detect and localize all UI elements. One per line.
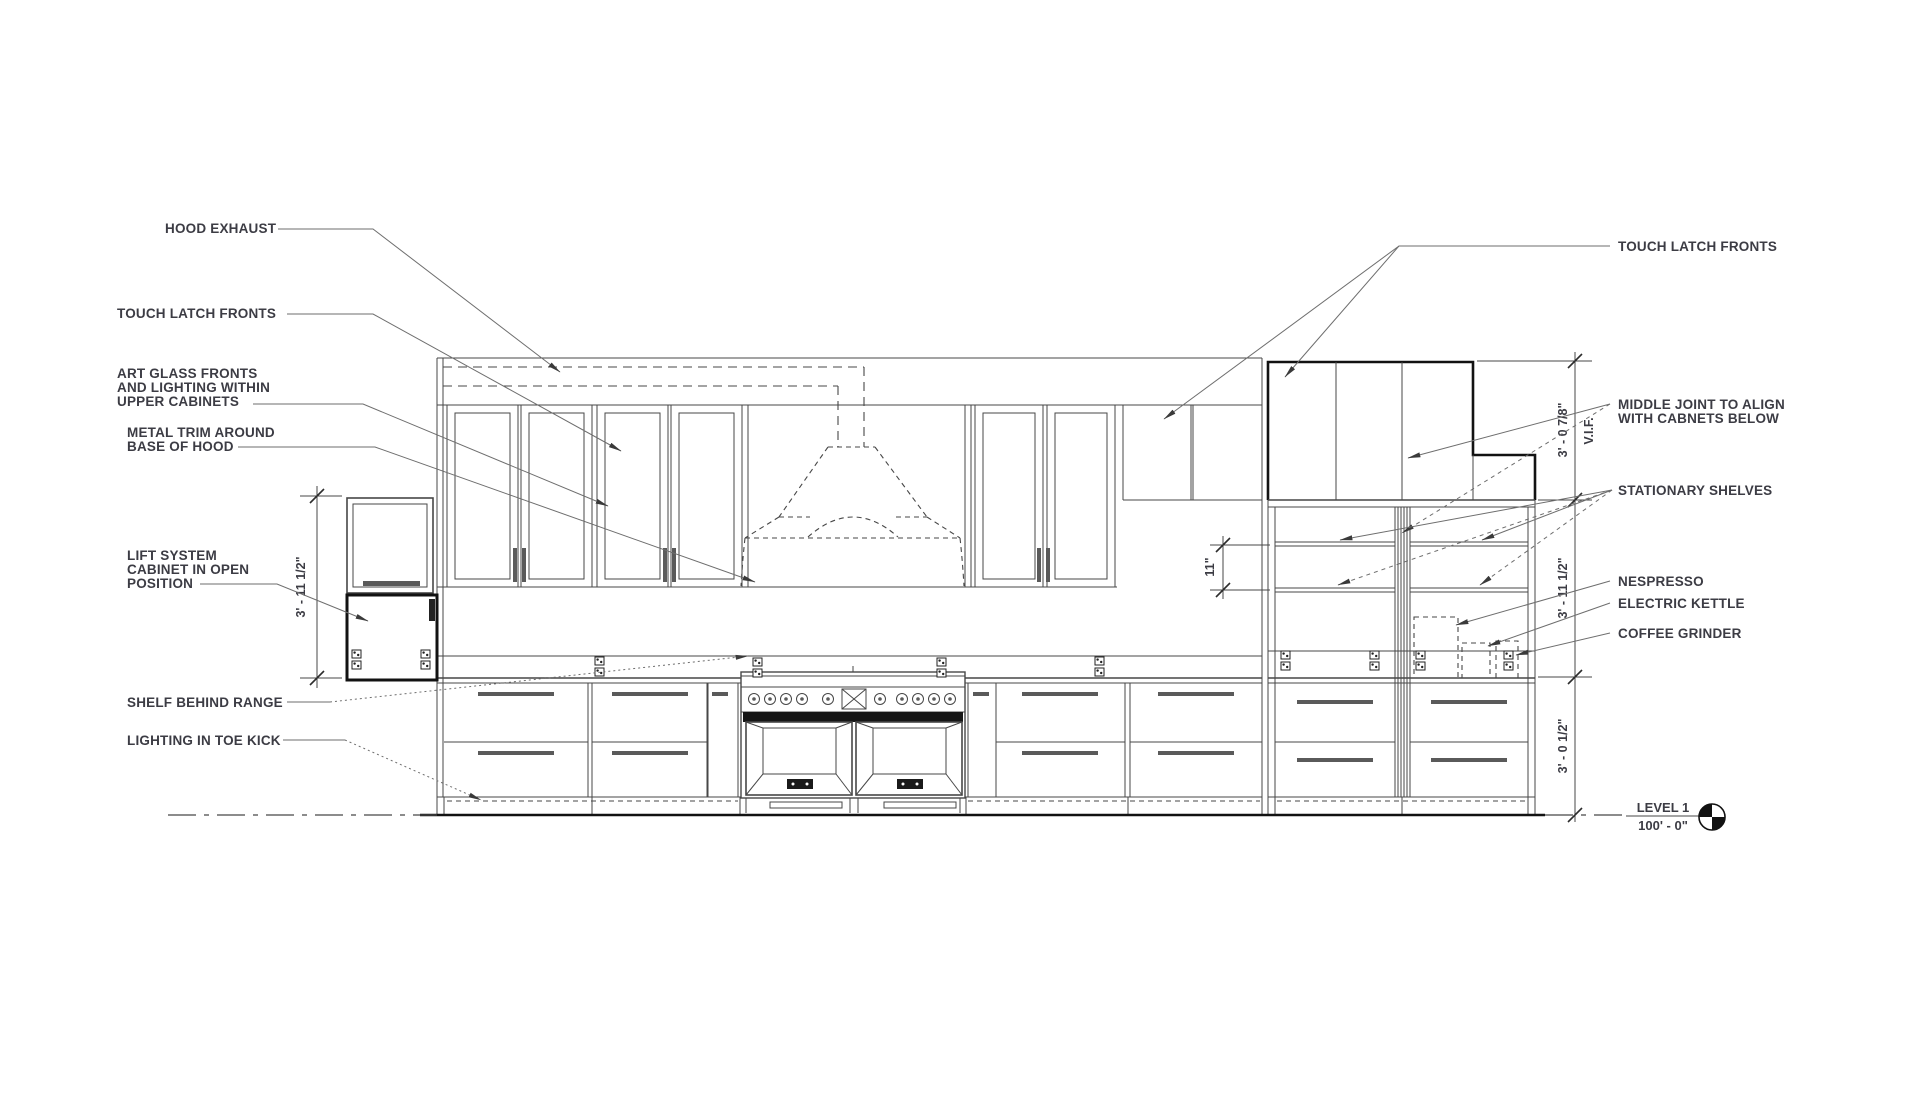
dim-lift-cabinet-height: 3' - 11 1/2" — [294, 556, 308, 617]
label-middle-joint-2: WITH CABNETS BELOW — [1618, 411, 1779, 426]
annotations-right: TOUCH LATCH FRONTS MIDDLE JOINT TO ALIGN… — [1618, 239, 1785, 641]
label-art-glass-1: ART GLASS FRONTS — [117, 366, 257, 381]
label-middle-joint-1: MIDDLE JOINT TO ALIGN — [1618, 397, 1785, 412]
label-art-glass-2: AND LIGHTING WITHIN — [117, 380, 270, 395]
dim-vif: V.I.F. — [1582, 417, 1596, 444]
upper-cabinets-right-of-hood — [965, 405, 1262, 587]
label-lift-system-3: POSITION — [127, 576, 193, 591]
label-shelf-behind-range: SHELF BEHIND RANGE — [127, 695, 283, 710]
level-elevation: 100' - 0" — [1638, 818, 1688, 833]
upper-cabinets-left — [437, 405, 1117, 587]
annotations-left: HOOD EXHAUST TOUCH LATCH FRONTS ART GLAS… — [117, 221, 283, 748]
toe-kick — [444, 797, 1528, 815]
dimension-column-right: 3' - 0 7/8" V.I.F. 3' - 11 1/2" 3' - 0 1… — [1477, 352, 1596, 822]
label-lighting-toe-kick: LIGHTING IN TOE KICK — [127, 733, 281, 748]
label-metal-trim-1: METAL TRIM AROUND — [127, 425, 275, 440]
label-touch-latch-right: TOUCH LATCH FRONTS — [1618, 239, 1777, 254]
dimension-lift-cabinet: 3' - 11 1/2" — [294, 486, 342, 688]
range-hood-dashed-outline — [741, 447, 964, 586]
label-hood-exhaust: HOOD EXHAUST — [165, 221, 277, 236]
lift-system-cabinet — [347, 498, 437, 680]
dim-shelf-spacing: 11" — [1203, 557, 1217, 576]
base-cabinets — [437, 683, 1535, 797]
label-electric-kettle: ELECTRIC KETTLE — [1618, 596, 1745, 611]
dimension-shelf-spacing: 11" — [1203, 536, 1270, 599]
level-name: LEVEL 1 — [1637, 800, 1690, 815]
level-target-icon — [1699, 804, 1725, 830]
touch-latch-hardware — [595, 651, 1513, 677]
stationary-shelves-section — [1268, 500, 1535, 815]
label-lift-system-1: LIFT SYSTEM — [127, 548, 217, 563]
dim-middle-section-height: 3' - 11 1/2" — [1556, 557, 1570, 618]
kitchen-elevation-drawing: 3' - 11 1/2" 3' - 0 7/8" V.I.F. 3' - 11 … — [0, 0, 1920, 1094]
label-art-glass-3: UPPER CABINETS — [117, 394, 239, 409]
level-marker: LEVEL 1 100' - 0" — [1626, 800, 1725, 833]
label-lift-system-2: CABINET IN OPEN — [127, 562, 249, 577]
label-coffee-grinder: COFFEE GRINDER — [1618, 626, 1742, 641]
elevation-sheet: 3' - 11 1/2" 3' - 0 7/8" V.I.F. 3' - 11 … — [0, 0, 1920, 1094]
label-touch-latch-left: TOUCH LATCH FRONTS — [117, 306, 276, 321]
dim-base-cabinet-height: 3' - 0 1/2" — [1556, 719, 1570, 774]
label-stationary-shelves: STATIONARY SHELVES — [1618, 483, 1772, 498]
appliances-dashed — [1414, 617, 1518, 678]
hood-exhaust-duct — [443, 367, 864, 447]
range — [741, 666, 965, 813]
label-metal-trim-2: BASE OF HOOD — [127, 439, 234, 454]
label-nespresso: NESPRESSO — [1618, 574, 1704, 589]
